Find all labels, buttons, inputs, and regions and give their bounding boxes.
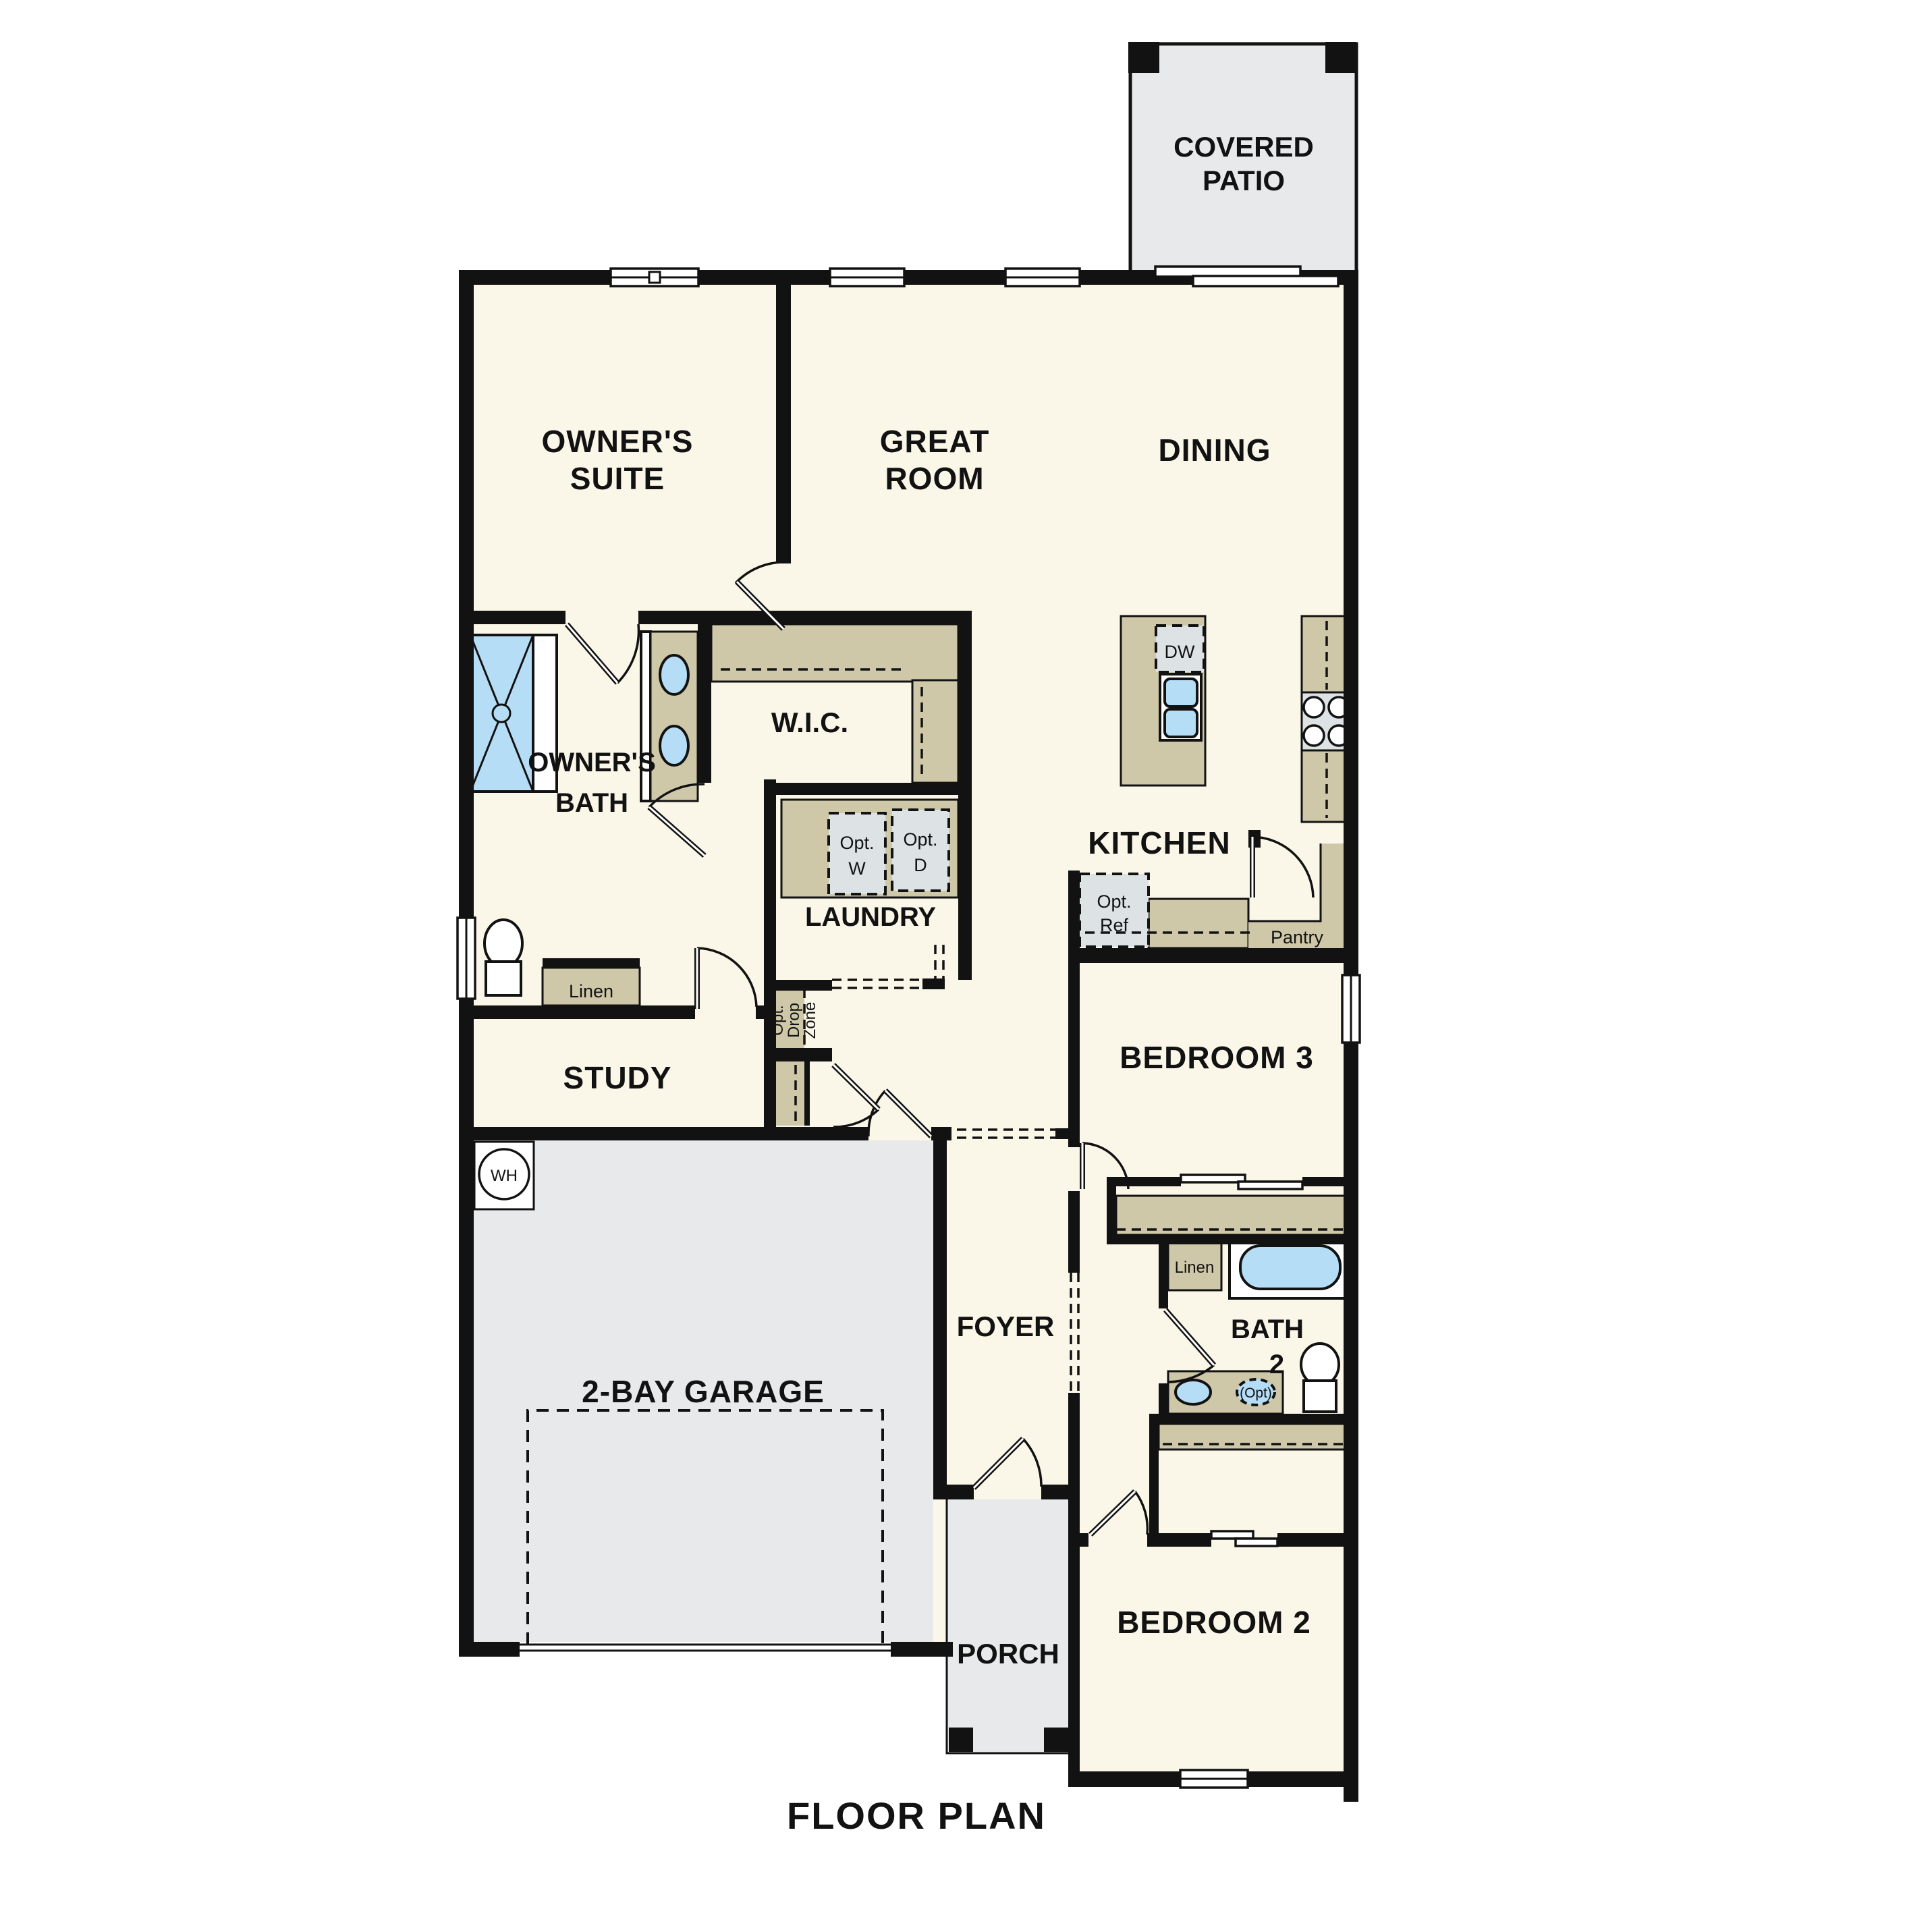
- burner-icon: [1304, 725, 1324, 746]
- optional-sink-label: (Opt): [1240, 1385, 1272, 1401]
- linen-bath2-label: Linen: [1175, 1259, 1215, 1277]
- wic-label: W.I.C.: [771, 707, 848, 738]
- dryer-box: [892, 810, 949, 891]
- floor-plan-title: FLOOR PLAN: [787, 1794, 1046, 1837]
- shower-drain-icon: [493, 705, 510, 722]
- owners-sink-2: [660, 726, 688, 765]
- patio-post-right: [1325, 42, 1356, 73]
- window-mullion-icon: [649, 272, 660, 283]
- garage-label: 2-BAY GARAGE: [582, 1374, 825, 1409]
- bath2-label: 2: [1269, 1350, 1284, 1379]
- bath2-toilet-bowl: [1301, 1344, 1339, 1385]
- drop-zone-label: Drop: [785, 1003, 803, 1038]
- drop-zone-label: Opt.: [769, 1005, 787, 1035]
- porch-label: PORCH: [957, 1638, 1059, 1669]
- patio-post-left: [1128, 42, 1159, 73]
- owners-suite-label: SUITE: [570, 461, 665, 496]
- wic-shelf-top: [711, 624, 958, 682]
- dryer-label: D: [914, 855, 927, 875]
- water-heater-label: WH: [491, 1167, 518, 1185]
- great-room-label: ROOM: [885, 461, 984, 496]
- owners-suite-label: OWNER'S: [542, 424, 694, 459]
- refrigerator-label: Opt.: [1097, 891, 1131, 912]
- washer-label: Opt.: [839, 833, 874, 853]
- coat-closet-shelf: [773, 1061, 804, 1126]
- bathtub: [1240, 1246, 1340, 1289]
- porch-post-left: [949, 1728, 973, 1752]
- laundry-label: LAUNDRY: [805, 902, 936, 932]
- porch-floor: [947, 1499, 1068, 1753]
- floor-plan-drawing: COVERED PATIO OWNER'S SUITE GREAT ROOM D…: [0, 0, 1932, 1932]
- bath2-sink: [1176, 1380, 1211, 1404]
- wic-shelf-right: [912, 680, 958, 783]
- patio-slider-panel: [1193, 276, 1338, 286]
- foyer-label: FOYER: [957, 1310, 1055, 1342]
- bedroom2-floor: [1068, 1642, 1344, 1771]
- owners-bath-label: BATH: [555, 788, 628, 818]
- burner-icon: [1304, 697, 1324, 717]
- washer-box: [829, 813, 885, 894]
- linen-owners-wall: [543, 958, 640, 968]
- island-sink-basin-1: [1165, 679, 1197, 707]
- suite-divider-wall: [776, 285, 791, 563]
- great-room-label: GREAT: [880, 424, 990, 459]
- covered-patio-label: PATIO: [1203, 165, 1285, 196]
- bedroom3-closet-slider: [1181, 1175, 1245, 1182]
- bedroom3-closet-slider: [1238, 1182, 1302, 1189]
- bath2-label: BATH: [1231, 1315, 1304, 1344]
- bath2-toilet-tank: [1304, 1381, 1336, 1412]
- kitchen-label: KITCHEN: [1088, 825, 1230, 860]
- bedroom2-closet-slider: [1236, 1539, 1277, 1546]
- owners-bath-label: OWNER'S: [528, 748, 656, 777]
- island-sink-basin-2: [1165, 709, 1197, 737]
- study-label: STUDY: [563, 1060, 672, 1095]
- linen-owners-label: Linen: [569, 981, 613, 1001]
- owners-toilet-tank: [486, 962, 521, 995]
- dryer-label: Opt.: [903, 829, 937, 850]
- drop-zone-label: Zone: [801, 1002, 819, 1039]
- bedroom3-label: BEDROOM 3: [1120, 1040, 1314, 1075]
- kitchen-counter-lower: [1149, 899, 1248, 948]
- pantry-label: Pantry: [1271, 927, 1324, 947]
- porch-post-right: [1044, 1728, 1068, 1752]
- dining-label: DINING: [1159, 433, 1271, 468]
- washer-label: W: [848, 858, 866, 879]
- bedroom2-label: BEDROOM 2: [1117, 1605, 1311, 1640]
- covered-patio-label: COVERED: [1174, 131, 1314, 163]
- dishwasher-label: DW: [1165, 642, 1195, 662]
- refrigerator-label: Ref: [1100, 915, 1129, 935]
- owners-toilet-bowl: [485, 920, 522, 967]
- bedroom2-closet-shelf: [1159, 1424, 1353, 1450]
- owners-sink-1: [660, 655, 688, 694]
- floor-plan-page: COVERED PATIO OWNER'S SUITE GREAT ROOM D…: [0, 0, 1932, 1932]
